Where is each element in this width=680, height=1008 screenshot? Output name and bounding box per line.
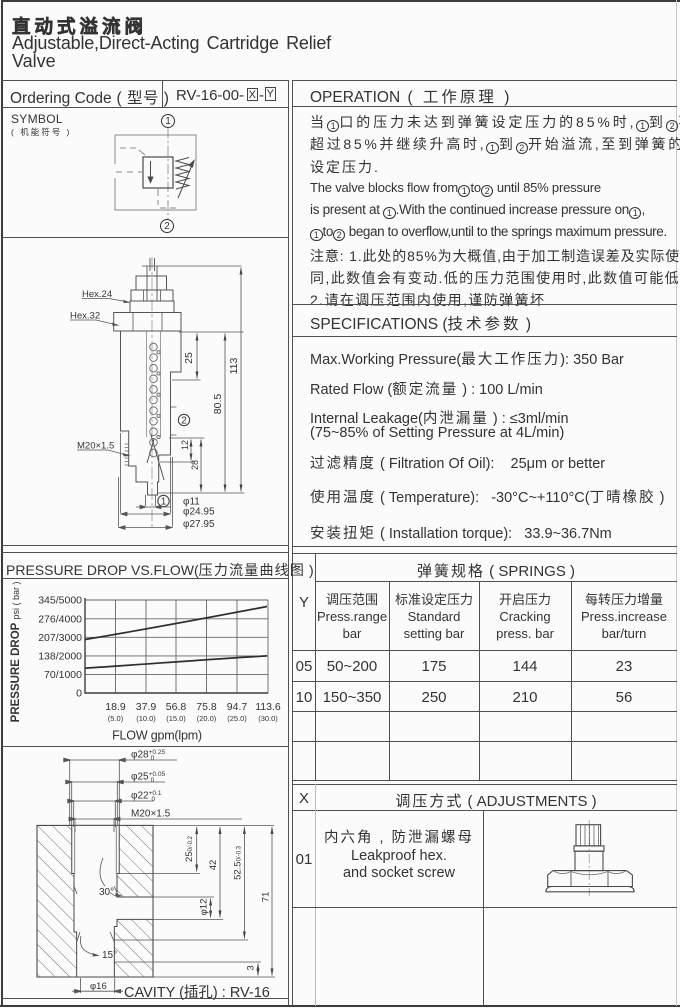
svg-text:(20.0): (20.0) — [197, 714, 217, 723]
svg-text:(15.0): (15.0) — [166, 714, 186, 723]
svg-text:1: 1 — [161, 497, 167, 508]
svg-text:207/3000: 207/3000 — [38, 632, 82, 644]
svg-text:345/5000: 345/5000 — [38, 595, 82, 607]
svg-text:φ22+0.10: φ22+0.10 — [131, 790, 162, 803]
svg-text:113: 113 — [228, 357, 240, 374]
svg-text:28: 28 — [190, 460, 200, 470]
svg-text:42: 42 — [208, 860, 219, 871]
svg-text:(30.0): (30.0) — [258, 714, 278, 723]
svg-text:70/1000: 70/1000 — [44, 669, 82, 681]
svg-text:φ16: φ16 — [90, 981, 107, 992]
svg-text:psi ( bar ): psi ( bar ) — [11, 581, 21, 619]
svg-text:71: 71 — [261, 892, 272, 903]
svg-text:(10.0): (10.0) — [136, 714, 156, 723]
svg-text:250/-0.2: 250/-0.2 — [184, 835, 195, 862]
svg-text:0: 0 — [76, 688, 82, 700]
svg-text:52.50/-0.3: 52.50/-0.3 — [233, 845, 244, 880]
svg-text:18.9: 18.9 — [105, 701, 126, 713]
svg-text:(25.0): (25.0) — [227, 714, 247, 723]
svg-text:φ27.95: φ27.95 — [183, 519, 215, 530]
svg-text:M20×1.5: M20×1.5 — [131, 809, 171, 820]
svg-text:φ24.95: φ24.95 — [183, 507, 215, 518]
svg-text:113.6: 113.6 — [255, 701, 281, 713]
svg-text:15°: 15° — [102, 950, 117, 961]
svg-text:75.8: 75.8 — [196, 701, 217, 713]
svg-text:30°: 30° — [99, 887, 114, 898]
svg-text:(5.0): (5.0) — [108, 714, 124, 723]
svg-text:94.7: 94.7 — [227, 701, 248, 713]
svg-text:12: 12 — [180, 440, 190, 450]
svg-text:138/2000: 138/2000 — [38, 650, 82, 662]
svg-text:PRESSURE DROP: PRESSURE DROP — [10, 622, 22, 722]
svg-text:56.8: 56.8 — [166, 701, 187, 713]
svg-text:FLOW gpm(lpm): FLOW gpm(lpm) — [112, 729, 202, 743]
svg-text:φ12: φ12 — [199, 899, 210, 916]
svg-text:80.5: 80.5 — [212, 394, 224, 415]
svg-text:3: 3 — [246, 965, 257, 970]
svg-text:25: 25 — [183, 352, 195, 364]
svg-text:2: 2 — [181, 416, 187, 427]
svg-text:276/4000: 276/4000 — [38, 613, 82, 625]
svg-text:37.9: 37.9 — [136, 701, 157, 713]
